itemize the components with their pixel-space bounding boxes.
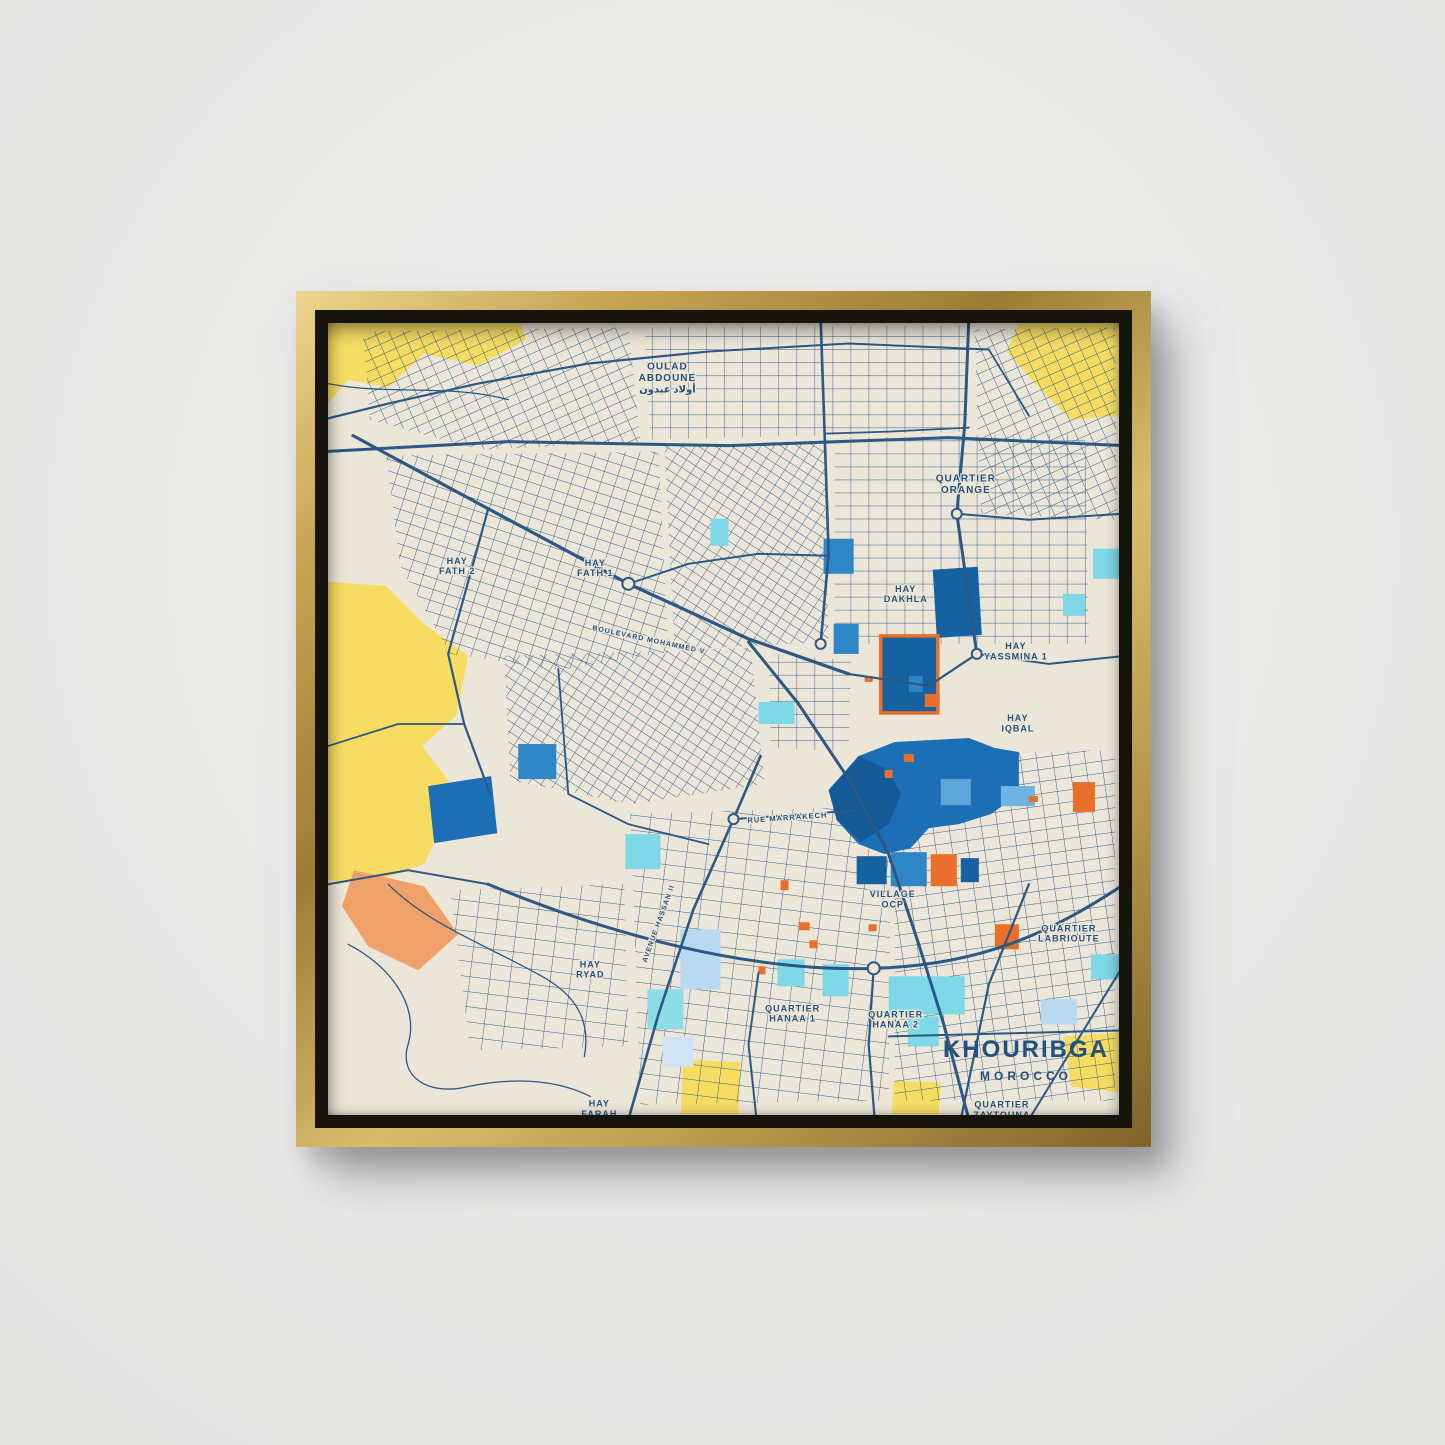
map-label: OULADABDOUNEأولاد عبدون: [639, 362, 697, 396]
map-area-patch: [625, 834, 660, 869]
map-area-patch: [1063, 594, 1085, 616]
roundabout: [816, 639, 826, 649]
map-area-patch: [1093, 549, 1119, 579]
street-grid-district: [450, 884, 628, 1050]
map-area-patch: [799, 922, 810, 930]
map-area-patch: [941, 779, 971, 805]
street-grid-district: [664, 442, 828, 650]
roundabout: [952, 509, 962, 519]
map-label: QUARTIERORANGE: [936, 474, 996, 497]
map-canvas: OULADABDOUNEأولاد عبدونQUARTIERORANGEHAY…: [328, 323, 1119, 1115]
gold-frame: OULADABDOUNEأولاد عبدونQUARTIERORANGEHAY…: [296, 291, 1151, 1147]
roundabout: [868, 962, 880, 974]
wall-background: OULADABDOUNEأولاد عبدونQUARTIERORANGEHAY…: [0, 0, 1445, 1445]
map-label: QUARTIERLABRIOUTE: [1038, 923, 1100, 943]
map-area-patch: [1041, 999, 1077, 1024]
map-area-patch: [662, 1036, 693, 1066]
map-area-patch: [680, 929, 720, 989]
map-area-patch: [961, 858, 979, 882]
map-area-patch: [941, 864, 948, 870]
map-area-patch: [925, 694, 940, 707]
roundabout: [972, 649, 982, 659]
map-area-patch: [759, 702, 795, 724]
frame-inner-gap: OULADABDOUNEأولاد عبدونQUARTIERORANGEHAY…: [315, 310, 1132, 1128]
map-label: HAYRYAD: [576, 959, 604, 979]
roundabout: [729, 814, 739, 824]
map-area-patch: [1029, 796, 1038, 802]
map-label: QUARTIERZAYTOUNA: [973, 1099, 1030, 1115]
map-area-patch: [869, 924, 877, 931]
city-map-svg: OULADABDOUNEأولاد عبدونQUARTIERORANGEHAY…: [328, 323, 1119, 1115]
map-area-patch: [759, 966, 766, 974]
map-area-patch: [810, 940, 818, 948]
map-area-patch: [1073, 782, 1095, 812]
map-area-patch: [885, 770, 893, 778]
map-label: QUARTIERHANAA 1: [765, 1003, 820, 1023]
map-area-patch: [857, 856, 887, 884]
map-area-patch: [1091, 954, 1119, 979]
street-grid-district: [504, 648, 764, 804]
map-area-patch: [518, 744, 556, 779]
map-area-patch: [710, 519, 728, 546]
map-label: QUARTIERHANAA 2: [868, 1009, 923, 1029]
map-area-patch: [781, 880, 789, 890]
roundabout: [622, 578, 634, 590]
map-area-patch: [904, 754, 914, 762]
map-area-patch: [834, 624, 859, 654]
